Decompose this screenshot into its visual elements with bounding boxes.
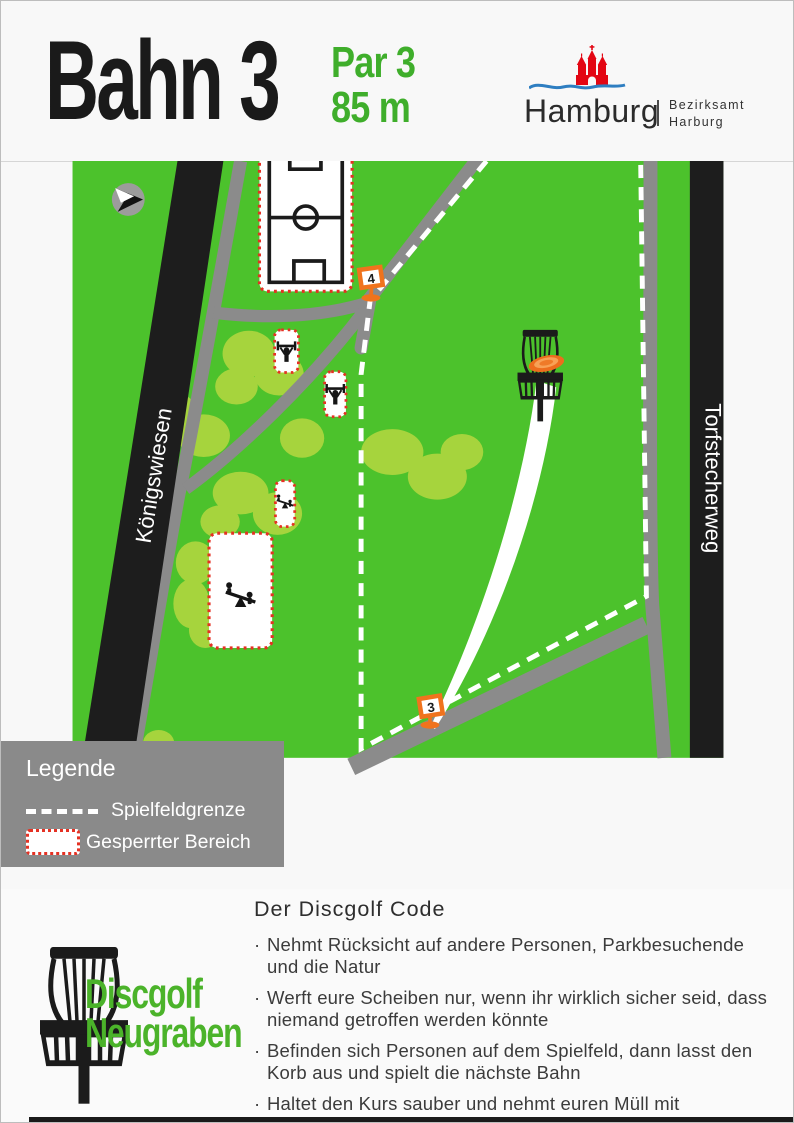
code-rule: · Befinden sich Personen auf dem Spielfe… (254, 1040, 769, 1084)
restricted-area-fitness-1 (275, 330, 299, 373)
header: Bahn 3 Par 3 85 m (1, 1, 794, 162)
compass-icon (112, 183, 145, 216)
par-value: Par 3 (331, 41, 415, 85)
tee-marker-4: 4 (359, 267, 383, 302)
brand-line2: Neugraben (85, 1014, 241, 1053)
restricted-area-playground (209, 533, 272, 648)
dept-line2: Harburg (669, 116, 745, 129)
rule-text: Nehmt Rücksicht auf andere Personen, Par… (267, 934, 769, 978)
code-rule: · Werft eure Scheiben nur, wenn ihr wirk… (254, 987, 769, 1031)
legend-row-boundary: Spielfeldgrenze (26, 799, 271, 822)
code-rule: · Nehmt Rücksicht auf andere Personen, P… (254, 934, 769, 978)
restricted-area-fitness-2 (325, 372, 346, 417)
legend: Legende Spielfeldgrenze Gesperrter Berei… (1, 741, 284, 867)
footer-section: Discgolf Neugraben Der Discgolf Code · N… (1, 889, 794, 1123)
course-poster-page: Bahn 3 Par 3 85 m (0, 0, 794, 1123)
restricted-label: Gesperrter Bereich (86, 831, 251, 854)
soccer-field-icon (259, 161, 352, 291)
logo-divider (657, 100, 659, 126)
restricted-area-sample (26, 829, 80, 855)
distance-value: 85 m (331, 86, 415, 130)
bullet-marker: · (254, 934, 267, 978)
hole-stats: Par 3 85 m (331, 41, 434, 130)
legend-row-restricted: Gesperrter Bereich (26, 829, 271, 855)
page-title: Bahn 3 (45, 25, 278, 137)
dept-line1: Bezirksamt (669, 99, 745, 112)
brand-wordmark: Discgolf Neugraben (85, 975, 291, 1052)
boundary-label: Spielfeldgrenze (111, 799, 245, 822)
wave-icon (529, 85, 625, 88)
rule-text: Haltet den Kurs sauber und nehmt euren M… (267, 1093, 680, 1115)
code-rule: · Haltet den Kurs sauber und nehmt euren… (254, 1093, 769, 1115)
rule-text: Werft eure Scheiben nur, wenn ihr wirkli… (267, 987, 769, 1031)
bullet-marker: · (254, 1093, 267, 1115)
code-title: Der Discgolf Code (254, 897, 769, 922)
legend-title: Legende (26, 755, 116, 782)
rule-text: Befinden sich Personen auf dem Spielfeld… (267, 1040, 769, 1084)
district-office-label: Bezirksamt Harburg (669, 99, 745, 132)
street-label-right: Torfstecherweg (700, 403, 725, 553)
dashed-line-sample (26, 809, 98, 814)
footer-accent-bar (29, 1117, 794, 1123)
discgolf-code: Der Discgolf Code · Nehmt Rücksicht auf … (254, 897, 769, 1123)
restricted-area-seesaw-small (275, 481, 294, 527)
code-rules-list: · Nehmt Rücksicht auf andere Personen, P… (254, 934, 769, 1115)
hamburg-wordmark: Hamburg (524, 93, 659, 130)
hamburg-crest-icon (529, 43, 626, 95)
